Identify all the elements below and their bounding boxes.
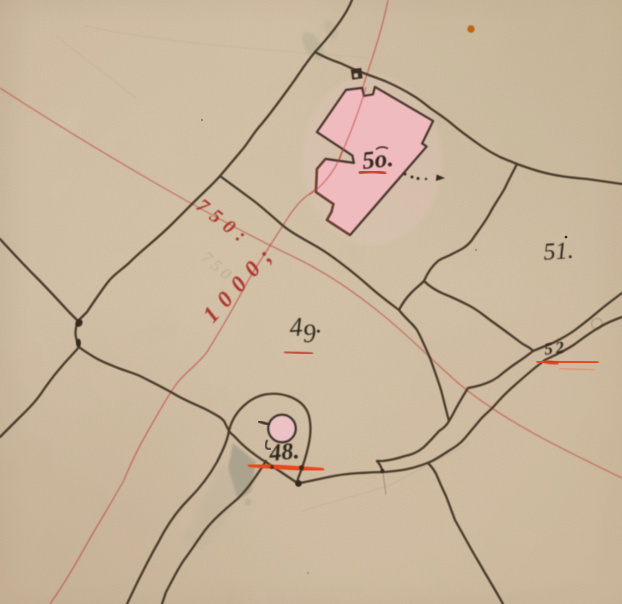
svg-text:48.: 48. — [267, 438, 300, 467]
svg-text:51.: 51. — [543, 238, 575, 266]
svg-text:52: 52 — [543, 337, 568, 359]
